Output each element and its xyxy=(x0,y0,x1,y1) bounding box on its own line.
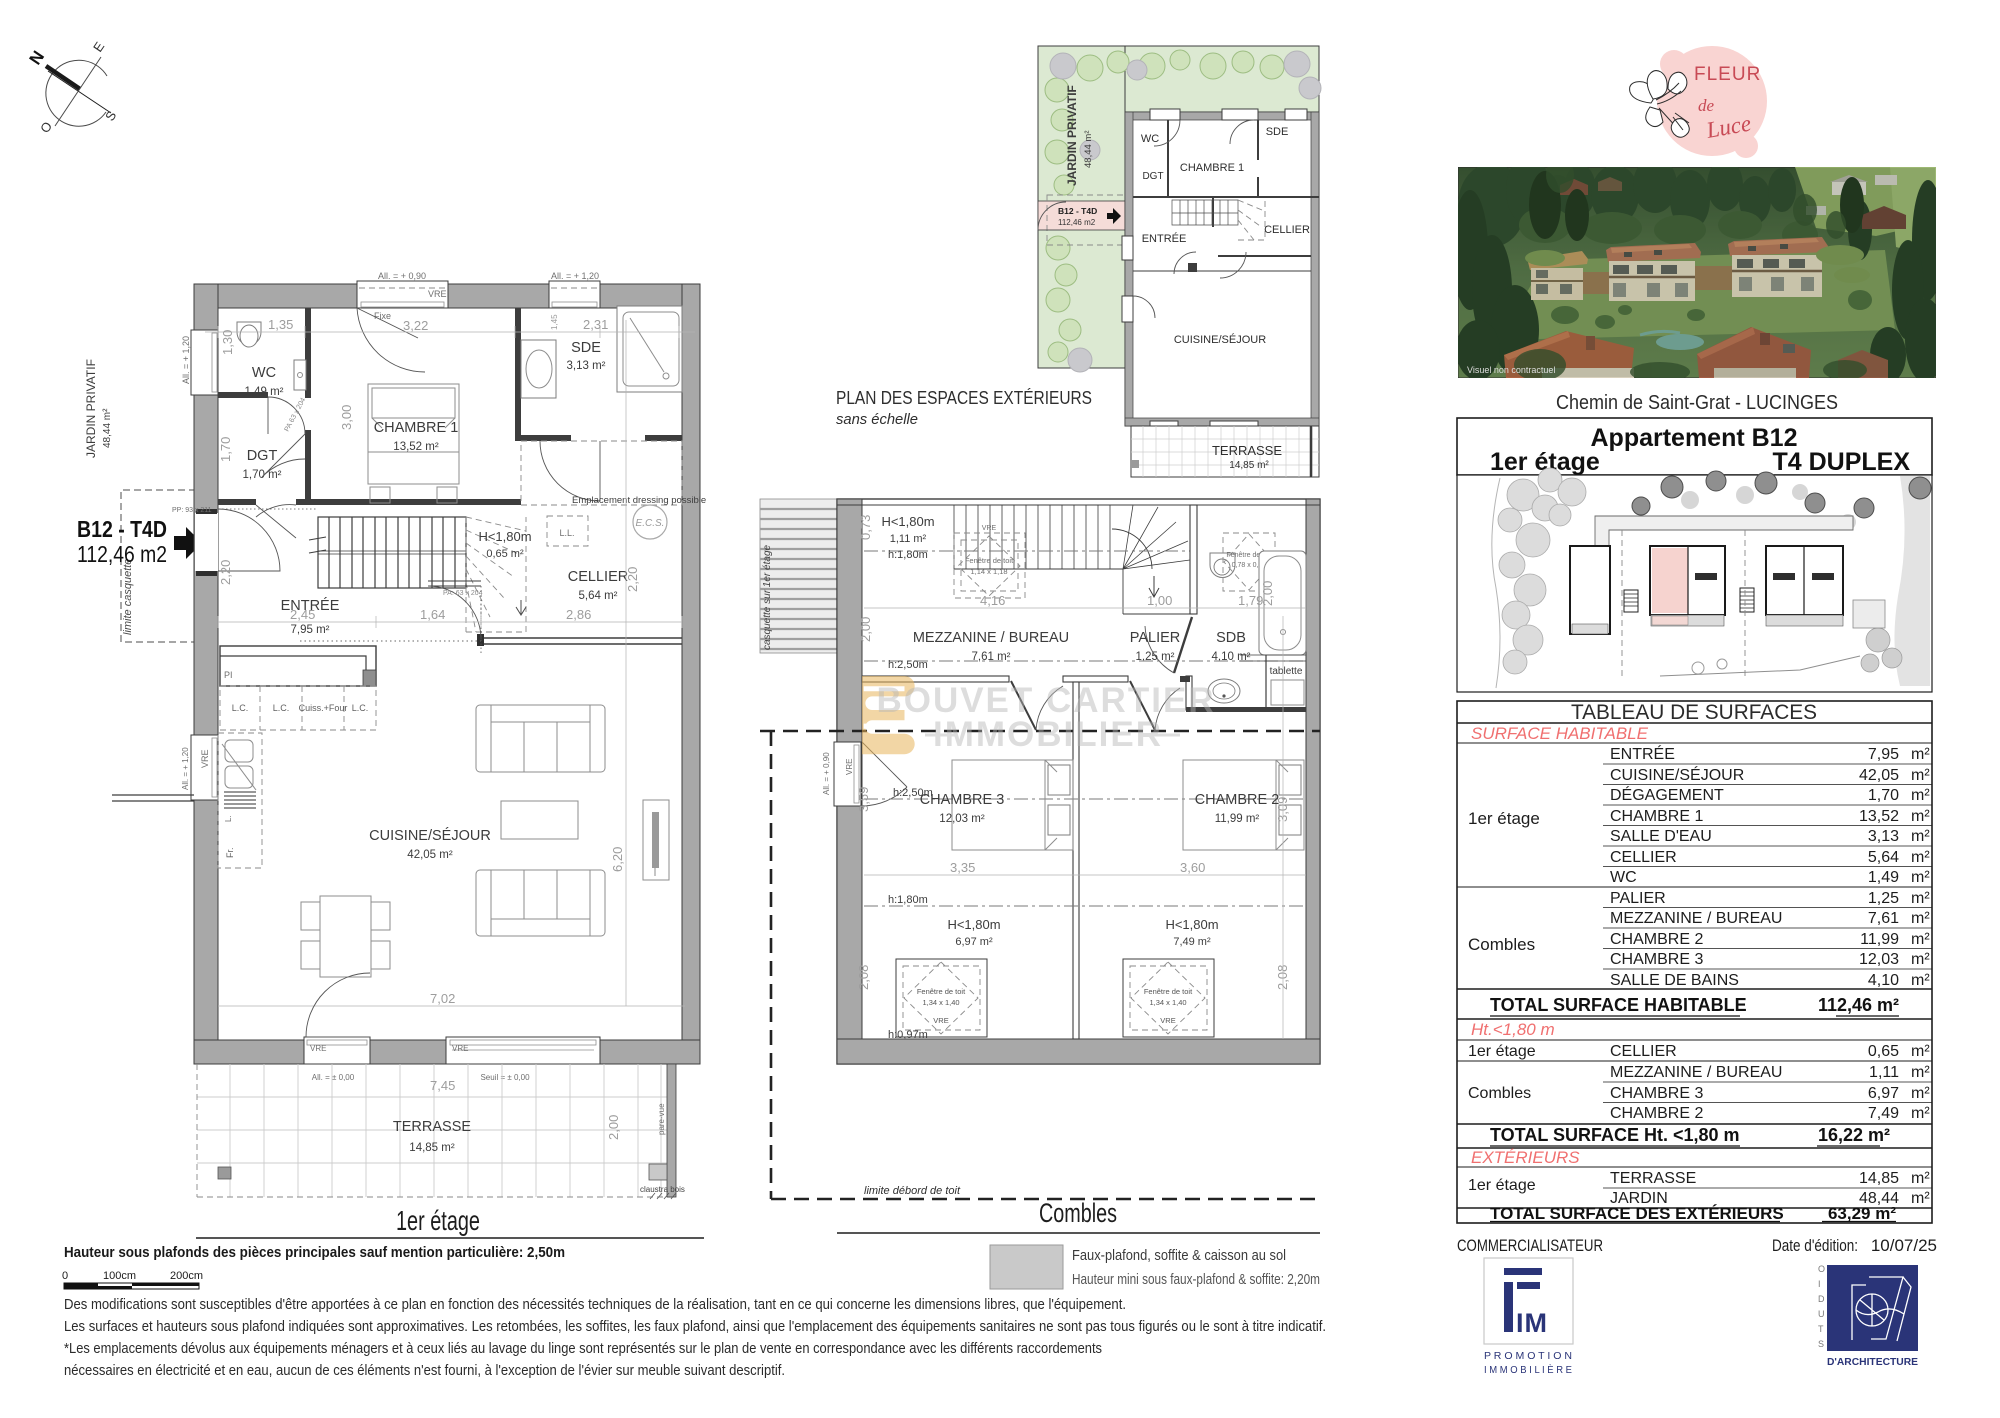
svg-text:1,34 x 1,40: 1,34 x 1,40 xyxy=(1149,998,1186,1007)
svg-text:Combles: Combles xyxy=(1468,1085,1531,1102)
svg-text:H<1,80m: H<1,80m xyxy=(1165,917,1218,932)
svg-text:FLEUR: FLEUR xyxy=(1694,64,1761,85)
svg-text:All. = + 1,20: All. = + 1,20 xyxy=(551,271,599,281)
svg-text:112,46 m²: 112,46 m² xyxy=(1818,995,1899,1015)
svg-text:m²: m² xyxy=(1911,951,1930,968)
svg-text:PALIER: PALIER xyxy=(1130,630,1181,646)
svg-text:TERRASSE: TERRASSE xyxy=(1610,1170,1696,1187)
svg-text:2,08: 2,08 xyxy=(856,965,871,990)
svg-text:JARDIN PRIVATIF: JARDIN PRIVATIF xyxy=(1065,85,1079,186)
svg-text:1,70: 1,70 xyxy=(218,437,233,462)
svg-text:CHAMBRE 3: CHAMBRE 3 xyxy=(1610,1085,1703,1102)
svg-text:m²: m² xyxy=(1911,767,1930,784)
svg-text:4,10: 4,10 xyxy=(1868,972,1899,989)
svg-text:casquette sur 1er étage: casquette sur 1er étage xyxy=(762,544,773,650)
svg-text:h:1,80m: h:1,80m xyxy=(888,894,928,906)
svg-text:S: S xyxy=(1818,1339,1824,1349)
svg-text:DÉGAGEMENT: DÉGAGEMENT xyxy=(1610,785,1724,804)
svg-text:2,08: 2,08 xyxy=(1275,965,1290,990)
svg-text:12,03 m²: 12,03 m² xyxy=(939,813,985,825)
svg-text:Ht.<1,80 m: Ht.<1,80 m xyxy=(1471,1020,1555,1039)
svg-text:tablette: tablette xyxy=(1270,666,1303,677)
svg-text:L.: L. xyxy=(224,815,233,822)
svg-text:Faux-plafond, soffite & caisso: Faux-plafond, soffite & caisson au sol xyxy=(1072,1247,1286,1264)
svg-text:L.C.: L.C. xyxy=(273,703,290,713)
svg-text:CUISINE/SÉJOUR: CUISINE/SÉJOUR xyxy=(369,827,491,844)
svg-text:7,45: 7,45 xyxy=(430,1078,455,1093)
svg-text:All. = ± 0,00: All. = ± 0,00 xyxy=(312,1073,355,1082)
svg-text:L.C.: L.C. xyxy=(352,703,369,713)
svg-text:H<1,80m: H<1,80m xyxy=(947,917,1000,932)
svg-text:L.C.: L.C. xyxy=(232,703,249,713)
svg-text:m²: m² xyxy=(1911,910,1930,927)
svg-text:SDE: SDE xyxy=(1266,126,1289,138)
svg-text:VRE: VRE xyxy=(200,749,210,768)
svg-text:3,13: 3,13 xyxy=(1868,828,1899,845)
svg-text:200cm: 200cm xyxy=(170,1270,203,1282)
svg-text:H<1,80m: H<1,80m xyxy=(478,529,531,544)
svg-text:COMMERCIALISATEUR: COMMERCIALISATEUR xyxy=(1457,1236,1603,1255)
svg-text:SALLE DE BAINS: SALLE DE BAINS xyxy=(1610,972,1739,989)
svg-text:Appartement B12: Appartement B12 xyxy=(1591,424,1798,452)
svg-text:1er étage: 1er étage xyxy=(1468,809,1540,828)
svg-text:DGT: DGT xyxy=(1142,171,1163,182)
svg-text:TERRASSE: TERRASSE xyxy=(393,1119,471,1135)
svg-text:3,59: 3,59 xyxy=(856,787,871,812)
svg-text:h:2,50m: h:2,50m xyxy=(888,659,928,671)
svg-text:7,49: 7,49 xyxy=(1868,1105,1899,1122)
svg-text:m²: m² xyxy=(1911,972,1930,989)
svg-text:Chemin de Saint-Grat - LUCINGE: Chemin de Saint-Grat - LUCINGES xyxy=(1556,392,1838,414)
svg-text:Fixe: Fixe xyxy=(374,311,391,321)
svg-text:10/07/25: 10/07/25 xyxy=(1871,1236,1937,1255)
svg-text:14,85 m²: 14,85 m² xyxy=(409,1142,455,1154)
svg-text:Date d'édition:: Date d'édition: xyxy=(1772,1236,1858,1255)
svg-text:1,64: 1,64 xyxy=(420,607,445,622)
svg-text:limite débord de toit: limite débord de toit xyxy=(864,1185,961,1197)
svg-text:1,00: 1,00 xyxy=(1147,593,1172,608)
svg-text:7,49 m²: 7,49 m² xyxy=(1173,936,1211,948)
svg-text:3,22: 3,22 xyxy=(403,318,428,333)
svg-text:1,30: 1,30 xyxy=(220,330,235,355)
svg-text:I: I xyxy=(1818,1279,1821,1289)
svg-text:1,70: 1,70 xyxy=(1868,787,1899,804)
svg-text:1,34 x 1,40: 1,34 x 1,40 xyxy=(922,998,959,1007)
svg-text:WC: WC xyxy=(1141,133,1159,145)
svg-text:3,60: 3,60 xyxy=(1180,860,1205,875)
svg-text:48,44 m²: 48,44 m² xyxy=(1083,131,1094,169)
svg-text:D: D xyxy=(1818,1294,1825,1304)
svg-text:42,05 m²: 42,05 m² xyxy=(407,849,453,861)
svg-text:63,29 m²: 63,29 m² xyxy=(1828,1204,1896,1223)
svg-text:O: O xyxy=(1818,1264,1825,1274)
svg-text:MEZZANINE / BUREAU: MEZZANINE / BUREAU xyxy=(913,630,1069,646)
svg-text:PI: PI xyxy=(224,670,233,680)
svg-text:Fenêtre de toit: Fenêtre de toit xyxy=(965,556,1014,565)
svg-text:PP: 93 x 211: PP: 93 x 211 xyxy=(172,507,212,514)
svg-text:T4 DUPLEX: T4 DUPLEX xyxy=(1772,448,1910,476)
svg-text:IM: IM xyxy=(1516,1308,1548,1338)
svg-text:m²: m² xyxy=(1911,1105,1930,1122)
svg-text:7,95: 7,95 xyxy=(1868,746,1899,763)
svg-text:WC: WC xyxy=(1610,869,1637,886)
svg-text:Fenêtre de toit: Fenêtre de toit xyxy=(1144,987,1193,996)
svg-text:Hauteur sous plafonds des pièc: Hauteur sous plafonds des pièces princip… xyxy=(64,1244,565,1261)
svg-text:Emplacement dressing possible: Emplacement dressing possible xyxy=(572,495,706,506)
svg-text:3,00: 3,00 xyxy=(339,405,354,430)
svg-text:VRE: VRE xyxy=(845,759,854,775)
svg-text:VRE: VRE xyxy=(933,1016,948,1025)
svg-text:1,49: 1,49 xyxy=(1868,869,1899,886)
svg-text:11,99 m²: 11,99 m² xyxy=(1215,813,1260,825)
svg-text:6,97 m²: 6,97 m² xyxy=(955,936,993,948)
svg-text:CELLIER: CELLIER xyxy=(568,569,628,585)
svg-text:m²: m² xyxy=(1911,1064,1930,1081)
svg-text:42,05: 42,05 xyxy=(1859,767,1899,784)
svg-text:Les surfaces et hauteurs sous: Les surfaces et hauteurs sous plafond in… xyxy=(64,1319,1326,1335)
svg-text:SDB: SDB xyxy=(1216,630,1246,646)
svg-text:CELLIER: CELLIER xyxy=(1264,224,1310,236)
svg-text:6,97: 6,97 xyxy=(1868,1085,1899,1102)
svg-text:7,95 m²: 7,95 m² xyxy=(291,624,330,636)
svg-text:B12 - T4D: B12 - T4D xyxy=(77,516,167,542)
svg-text:m²: m² xyxy=(1911,890,1930,907)
svg-text:13,52 m²: 13,52 m² xyxy=(393,441,439,453)
svg-text:VRE: VRE xyxy=(1160,1016,1175,1025)
svg-text:U: U xyxy=(1818,1309,1825,1319)
svg-text:112,46 m2: 112,46 m2 xyxy=(77,541,167,567)
svg-text:H<1,80m: H<1,80m xyxy=(881,514,934,529)
svg-text:13,52: 13,52 xyxy=(1859,808,1899,825)
svg-text:2,20: 2,20 xyxy=(218,560,233,585)
svg-text:CHAMBRE 2: CHAMBRE 2 xyxy=(1610,931,1703,948)
svg-text:All. = + 0,90: All. = + 0,90 xyxy=(378,271,426,281)
svg-text:CHAMBRE 2: CHAMBRE 2 xyxy=(1195,792,1280,808)
svg-text:0: 0 xyxy=(62,1270,68,1282)
svg-text:5,64 m²: 5,64 m² xyxy=(579,590,618,602)
svg-text:Fr.: Fr. xyxy=(225,848,235,859)
svg-text:SDE: SDE xyxy=(571,340,601,356)
svg-text:m²: m² xyxy=(1911,1170,1930,1187)
svg-text:Visuel non contractuel: Visuel non contractuel xyxy=(1467,365,1555,375)
svg-text:E.C.S.: E.C.S. xyxy=(636,518,665,529)
svg-text:3,13 m²: 3,13 m² xyxy=(567,360,606,372)
svg-text:CELLIER: CELLIER xyxy=(1610,1043,1677,1060)
svg-text:m²: m² xyxy=(1911,808,1930,825)
svg-text:CHAMBRE 3: CHAMBRE 3 xyxy=(1610,951,1703,968)
svg-text:JARDIN PRIVATIF: JARDIN PRIVATIF xyxy=(84,359,98,458)
svg-text:1,70 m²: 1,70 m² xyxy=(243,469,282,481)
svg-text:100cm: 100cm xyxy=(103,1270,136,1282)
svg-text:VRE: VRE xyxy=(982,525,997,532)
svg-text:WC: WC xyxy=(252,365,276,381)
svg-text:m²: m² xyxy=(1911,1190,1930,1207)
svg-text:CHAMBRE 1: CHAMBRE 1 xyxy=(1180,162,1244,174)
svg-text:m²: m² xyxy=(1911,746,1930,763)
svg-text:1,11 m²: 1,11 m² xyxy=(890,533,927,545)
svg-text:1,11: 1,11 xyxy=(1869,1064,1899,1081)
svg-text:de: de xyxy=(1698,96,1715,115)
svg-text:14,85 m²: 14,85 m² xyxy=(1229,460,1269,471)
svg-text:6,20: 6,20 xyxy=(610,847,625,872)
svg-text:VRE: VRE xyxy=(310,1044,326,1053)
svg-text:CHAMBRE 3: CHAMBRE 3 xyxy=(920,792,1005,808)
svg-text:Combles: Combles xyxy=(1039,1198,1117,1228)
svg-text:Combles: Combles xyxy=(1468,935,1535,954)
svg-text:Des modifications sont suscept: Des modifications sont susceptibles d'êt… xyxy=(64,1297,1126,1313)
svg-text:CUISINE/SÉJOUR: CUISINE/SÉJOUR xyxy=(1610,765,1744,784)
svg-text:m²: m² xyxy=(1911,828,1930,845)
svg-text:0,73: 0,73 xyxy=(858,515,873,540)
svg-text:4,16: 4,16 xyxy=(980,593,1005,608)
svg-text:P R O M O T I O N: P R O M O T I O N xyxy=(1484,1351,1572,1362)
svg-text:ENTRÉE: ENTRÉE xyxy=(1142,232,1187,245)
svg-text:112,46 m2: 112,46 m2 xyxy=(1058,218,1096,227)
svg-text:L.L.: L.L. xyxy=(559,528,574,538)
svg-text:limite casquette: limite casquette xyxy=(122,559,134,635)
svg-text:m²: m² xyxy=(1911,787,1930,804)
svg-text:All. = + 1,20: All. = + 1,20 xyxy=(181,336,191,384)
svg-text:2,20: 2,20 xyxy=(625,567,640,592)
svg-text:m²: m² xyxy=(1911,849,1930,866)
svg-text:TOTAL SURFACE HABITABLE: TOTAL SURFACE HABITABLE xyxy=(1490,995,1747,1015)
svg-text:1er étage: 1er étage xyxy=(1468,1043,1536,1060)
svg-text:Cuiss.+Four: Cuiss.+Four xyxy=(299,703,348,713)
svg-text:m²: m² xyxy=(1911,869,1930,886)
svg-text:sans échelle: sans échelle xyxy=(836,411,918,428)
svg-text:Hauteur mini sous faux-plafond: Hauteur mini sous faux-plafond & soffite… xyxy=(1072,1272,1320,1288)
svg-text:SURFACE HABITABLE: SURFACE HABITABLE xyxy=(1471,724,1649,743)
svg-text:0,65 m²: 0,65 m² xyxy=(486,548,524,560)
svg-text:16,22 m²: 16,22 m² xyxy=(1818,1125,1890,1145)
svg-text:PALIER: PALIER xyxy=(1610,890,1666,907)
svg-text:m²: m² xyxy=(1911,931,1930,948)
svg-text:I M M O B I L I È R E: I M M O B I L I È R E xyxy=(1484,1363,1572,1376)
svg-text:7,02: 7,02 xyxy=(430,991,455,1006)
svg-text:2,00: 2,00 xyxy=(1260,581,1275,606)
svg-text:CHAMBRE 1: CHAMBRE 1 xyxy=(1610,808,1703,825)
svg-text:3,35: 3,35 xyxy=(950,860,975,875)
svg-text:5,64: 5,64 xyxy=(1868,849,1899,866)
svg-text:2,00: 2,00 xyxy=(606,1115,621,1140)
svg-text:MEZZANINE / BUREAU: MEZZANINE / BUREAU xyxy=(1610,910,1782,927)
svg-text:EXTÉRIEURS: EXTÉRIEURS xyxy=(1471,1148,1580,1167)
svg-text:VRE: VRE xyxy=(452,1044,468,1053)
svg-text:14,85: 14,85 xyxy=(1859,1170,1899,1187)
svg-text:1,45: 1,45 xyxy=(550,314,559,330)
svg-text:1,35: 1,35 xyxy=(268,317,293,332)
svg-text:1,25: 1,25 xyxy=(1868,890,1899,907)
svg-text:h:1,80m: h:1,80m xyxy=(888,549,928,561)
svg-text:nécessaires en électricité et: nécessaires en électricité et en eau, au… xyxy=(64,1363,785,1379)
svg-text:All. = + 1,20: All. = + 1,20 xyxy=(181,747,190,790)
svg-text:claustra bois: claustra bois xyxy=(640,1185,685,1194)
svg-text:2,45: 2,45 xyxy=(290,607,315,622)
svg-text:1er étage: 1er étage xyxy=(396,1205,480,1236)
svg-text:2,00: 2,00 xyxy=(858,617,873,642)
svg-text:m²: m² xyxy=(1911,1043,1930,1060)
svg-text:DGT: DGT xyxy=(247,448,278,464)
svg-text:VRE: VRE xyxy=(428,289,447,299)
svg-text:0,65: 0,65 xyxy=(1868,1043,1899,1060)
svg-text:1,14 x 1,18: 1,14 x 1,18 xyxy=(970,567,1007,576)
svg-text:2,86: 2,86 xyxy=(566,607,591,622)
svg-text:D'ARCHITECTURE: D'ARCHITECTURE xyxy=(1827,1357,1918,1368)
svg-text:2,31: 2,31 xyxy=(583,317,608,332)
svg-text:TERRASSE: TERRASSE xyxy=(1212,443,1282,458)
svg-text:1,49 m²: 1,49 m² xyxy=(245,386,284,398)
svg-text:12,03: 12,03 xyxy=(1859,951,1899,968)
svg-text:SALLE D'EAU: SALLE D'EAU xyxy=(1610,828,1712,845)
svg-text:TOTAL SURFACE Ht. <1,80 m: TOTAL SURFACE Ht. <1,80 m xyxy=(1490,1125,1740,1145)
svg-text:48,44 m²: 48,44 m² xyxy=(102,408,113,448)
svg-text:Fenêtre de toit: Fenêtre de toit xyxy=(917,987,966,996)
svg-text:MEZZANINE / BUREAU: MEZZANINE / BUREAU xyxy=(1610,1064,1782,1081)
svg-text:ENTRÉE: ENTRÉE xyxy=(1610,744,1675,763)
svg-text:Seuil = ± 0,00: Seuil = ± 0,00 xyxy=(480,1073,530,1082)
svg-text:CHAMBRE 2: CHAMBRE 2 xyxy=(1610,1105,1703,1122)
svg-text:7,61: 7,61 xyxy=(1868,910,1899,927)
svg-text:CELLIER: CELLIER xyxy=(1610,849,1677,866)
svg-text:m²: m² xyxy=(1911,1085,1930,1102)
svg-text:pare-vue: pare-vue xyxy=(657,1103,666,1135)
svg-text:All. = + 0,90: All. = + 0,90 xyxy=(822,752,831,795)
svg-text:PA: 63 x 204: PA: 63 x 204 xyxy=(443,590,483,597)
svg-text:11,99: 11,99 xyxy=(1860,931,1899,948)
svg-text:B12 - T4D: B12 - T4D xyxy=(1058,206,1097,216)
svg-text:CUISINE/SÉJOUR: CUISINE/SÉJOUR xyxy=(1174,333,1266,346)
svg-text:TOTAL SURFACE DES EXTÉRIEURS: TOTAL SURFACE DES EXTÉRIEURS xyxy=(1490,1204,1784,1223)
svg-text:TABLEAU DE SURFACES: TABLEAU DE SURFACES xyxy=(1571,701,1817,724)
svg-text:IMMOBILIER: IMMOBILIER xyxy=(933,715,1163,754)
svg-text:T: T xyxy=(1818,1324,1824,1334)
svg-text:1er étage: 1er étage xyxy=(1468,1177,1536,1194)
svg-text:CHAMBRE 1: CHAMBRE 1 xyxy=(374,420,459,436)
svg-text:*Les emplacements dévolus aux: *Les emplacements dévolus aux équipement… xyxy=(64,1341,1102,1357)
svg-text:3,09: 3,09 xyxy=(1275,797,1290,822)
svg-text:PLAN DES ESPACES EXTÉRIEURS: PLAN DES ESPACES EXTÉRIEURS xyxy=(836,388,1092,408)
svg-text:h:0,97m: h:0,97m xyxy=(888,1029,928,1041)
